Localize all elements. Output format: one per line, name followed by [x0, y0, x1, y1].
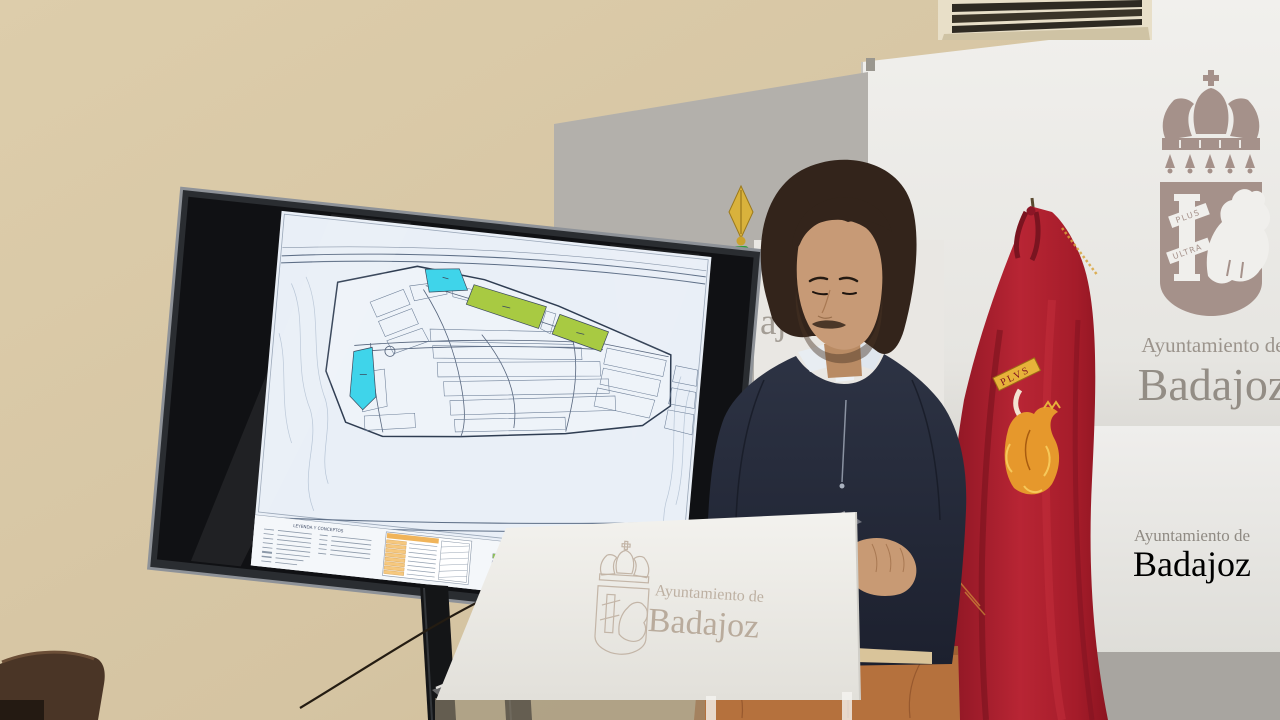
panel-clip	[866, 58, 875, 71]
ceiling-vent	[938, 0, 1152, 40]
backdrop-city-name: Badajoz	[1138, 359, 1280, 410]
lower-org-name: Ayuntamiento de	[1134, 526, 1250, 545]
chair	[0, 652, 105, 720]
backdrop-org-name: Ayuntamiento de	[1141, 333, 1280, 357]
podium-leg	[706, 696, 716, 720]
podium-leg	[842, 692, 852, 720]
badajoz-coat-of-arms: PLUS ULTRA	[1160, 70, 1270, 316]
podium-city-name: Badajoz	[647, 602, 760, 646]
press-conference-photo: PLUS ULTRA Ayuntamiento de Badajoz Ayunt…	[0, 0, 1280, 720]
lower-city-name: Badajoz	[1133, 544, 1251, 584]
podium: Ayuntamiento de Badajoz	[432, 512, 932, 720]
